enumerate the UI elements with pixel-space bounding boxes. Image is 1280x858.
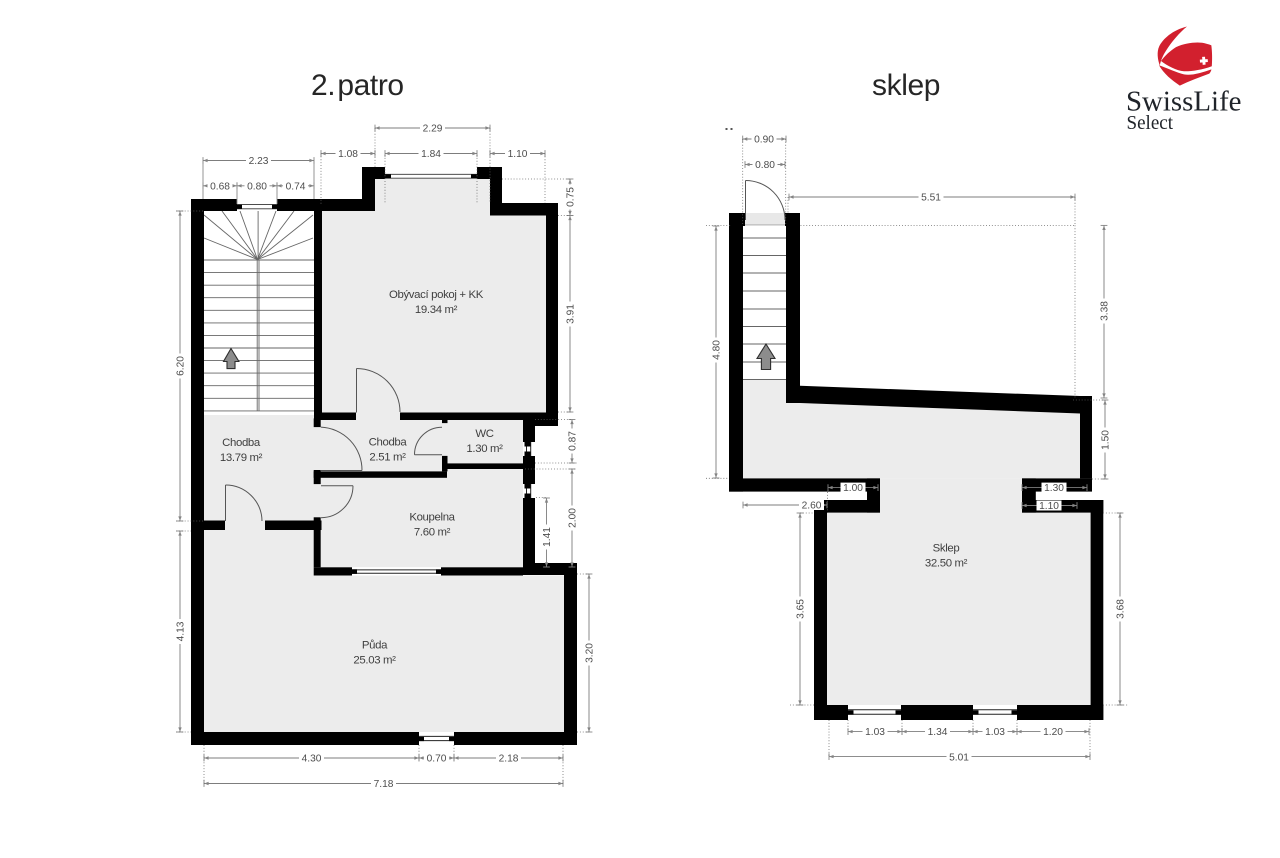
- svg-text:0.80: 0.80: [755, 160, 775, 171]
- svg-text:2.23: 2.23: [249, 156, 269, 167]
- svg-text:Chodba: Chodba: [369, 437, 408, 449]
- svg-text:0.80: 0.80: [247, 181, 267, 192]
- svg-text:1.10: 1.10: [1039, 501, 1059, 512]
- svg-text:2.29: 2.29: [423, 124, 443, 135]
- svg-text:0.68: 0.68: [210, 181, 230, 192]
- svg-text:5.51: 5.51: [921, 193, 941, 204]
- svg-text:1.84: 1.84: [421, 149, 441, 160]
- svg-text:4.30: 4.30: [302, 754, 322, 765]
- svg-text:25.03 m²: 25.03 m²: [353, 655, 396, 667]
- svg-text:Půda: Půda: [362, 640, 388, 652]
- svg-text:1.30 m²: 1.30 m²: [466, 443, 503, 455]
- svg-text:Chodba: Chodba: [222, 437, 261, 449]
- svg-text:6.20: 6.20: [176, 356, 187, 376]
- svg-text:2.60: 2.60: [802, 501, 822, 512]
- svg-text:1.34: 1.34: [928, 727, 948, 738]
- svg-text:2.18: 2.18: [499, 754, 519, 765]
- svg-text:1.20: 1.20: [1043, 727, 1063, 738]
- svg-text:2.51 m²: 2.51 m²: [369, 452, 406, 464]
- svg-text:1.30: 1.30: [1044, 483, 1064, 494]
- svg-text:0.74: 0.74: [286, 181, 306, 192]
- svg-text:Obývací pokoj + KK: Obývací pokoj + KK: [389, 289, 484, 301]
- svg-text:1.50: 1.50: [1101, 430, 1112, 450]
- svg-text:Koupelna: Koupelna: [409, 512, 455, 524]
- svg-text:1.41: 1.41: [542, 527, 553, 547]
- svg-text:WC: WC: [475, 428, 493, 440]
- svg-text:3.68: 3.68: [1116, 599, 1127, 619]
- svg-text:19.34 m²: 19.34 m²: [415, 304, 458, 316]
- svg-text:13.79 m²: 13.79 m²: [220, 452, 263, 464]
- svg-text:1.03: 1.03: [985, 727, 1005, 738]
- svg-text:Sklep: Sklep: [933, 543, 960, 555]
- svg-text:32.50 m²: 32.50 m²: [925, 558, 968, 570]
- svg-text:1.00: 1.00: [843, 483, 863, 494]
- svg-text:1.03: 1.03: [865, 727, 885, 738]
- svg-text:7.60 m²: 7.60 m²: [414, 527, 451, 539]
- svg-text:2.00: 2.00: [568, 508, 579, 528]
- svg-text:4.13: 4.13: [176, 621, 187, 641]
- svg-text:Select: Select: [1127, 113, 1174, 134]
- svg-text:5.01: 5.01: [949, 753, 969, 764]
- svg-text:4.80: 4.80: [712, 340, 723, 360]
- svg-text:3.38: 3.38: [1100, 301, 1111, 321]
- svg-text:7.18: 7.18: [374, 779, 394, 790]
- svg-text:0.87: 0.87: [568, 431, 579, 451]
- svg-text:0.75: 0.75: [566, 187, 577, 207]
- svg-text:3.20: 3.20: [585, 643, 596, 663]
- svg-text:sklep: sklep: [872, 69, 940, 102]
- svg-text:1.10: 1.10: [508, 149, 528, 160]
- svg-text:2. patro: 2. patro: [311, 69, 404, 102]
- svg-text:3.91: 3.91: [566, 304, 577, 324]
- svg-text:0.90: 0.90: [754, 135, 774, 146]
- svg-text:1.08: 1.08: [338, 149, 358, 160]
- svg-text:3.65: 3.65: [796, 599, 807, 619]
- svg-text:0.70: 0.70: [427, 754, 447, 765]
